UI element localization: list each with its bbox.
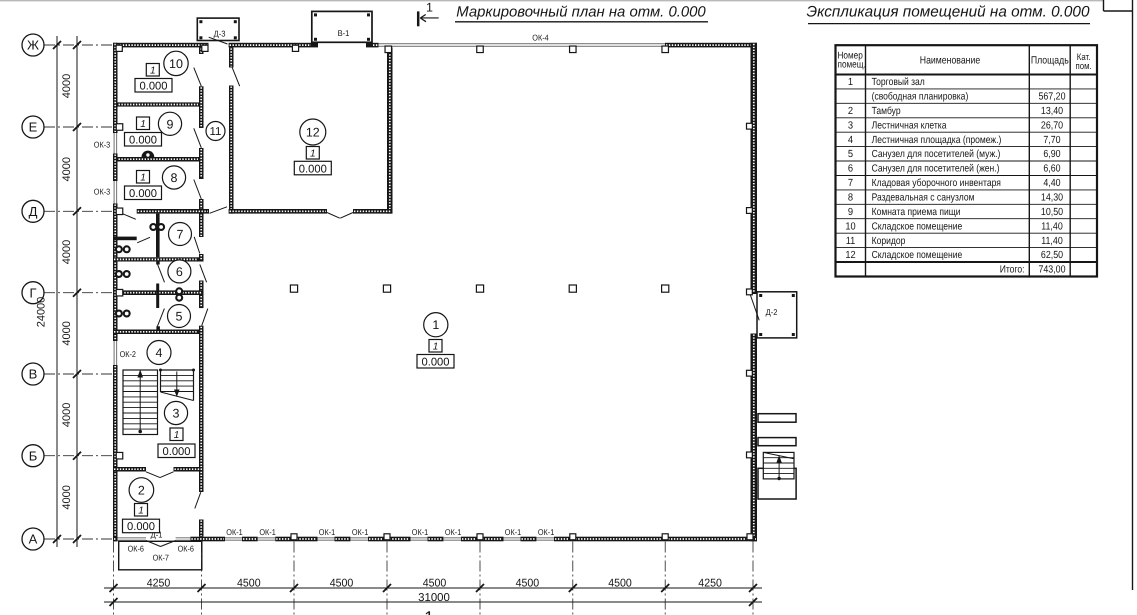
svg-text:8: 8	[171, 171, 178, 185]
svg-text:5: 5	[176, 310, 183, 324]
svg-text:10: 10	[169, 57, 183, 71]
svg-text:4000: 4000	[61, 74, 73, 98]
svg-text:1: 1	[174, 430, 180, 441]
svg-text:1: 1	[310, 149, 316, 160]
svg-text:14,30: 14,30	[1041, 193, 1063, 204]
svg-text:2: 2	[848, 106, 853, 117]
svg-text:1: 1	[848, 77, 853, 88]
svg-text:4500: 4500	[330, 578, 354, 590]
svg-text:1: 1	[138, 506, 144, 517]
svg-text:1: 1	[432, 318, 439, 332]
svg-text:0.000: 0.000	[422, 357, 450, 369]
svg-text:0.000: 0.000	[140, 81, 168, 93]
svg-text:1: 1	[140, 119, 146, 130]
svg-text:24000: 24000	[36, 297, 48, 328]
svg-text:3: 3	[173, 407, 180, 421]
svg-text:ОК-3: ОК-3	[94, 187, 111, 197]
svg-text:11: 11	[210, 126, 222, 138]
svg-text:Площадь: Площадь	[1031, 55, 1069, 67]
svg-text:Санузел для посетителей (жен.): Санузел для посетителей (жен.)	[872, 164, 1000, 175]
svg-text:Коридор: Коридор	[872, 236, 906, 247]
svg-text:Наименование: Наименование	[920, 55, 981, 67]
svg-text:В-1: В-1	[338, 28, 350, 38]
svg-text:А: А	[29, 532, 38, 547]
svg-text:0.000: 0.000	[129, 135, 157, 147]
svg-text:5: 5	[848, 149, 853, 160]
svg-text:Д: Д	[29, 204, 38, 219]
svg-text:4500: 4500	[237, 578, 261, 590]
svg-text:62,50: 62,50	[1041, 250, 1063, 261]
svg-text:3: 3	[848, 120, 853, 131]
svg-text:Е: Е	[29, 120, 38, 135]
svg-text:ОК-1: ОК-1	[352, 527, 369, 537]
svg-text:6: 6	[848, 164, 853, 175]
svg-text:Санузел для посетителей (муж.): Санузел для посетителей (муж.)	[872, 149, 1001, 160]
svg-text:13,40: 13,40	[1041, 106, 1063, 117]
svg-text:ОК-1: ОК-1	[226, 527, 243, 537]
svg-text:пом.: пом.	[1076, 60, 1092, 71]
svg-text:ОК-1: ОК-1	[259, 527, 276, 537]
svg-text:ОК-1: ОК-1	[505, 527, 522, 537]
svg-text:Складское помещение: Складское помещение	[872, 221, 963, 232]
svg-text:Складское помещение: Складское помещение	[872, 250, 963, 261]
svg-text:743,00: 743,00	[1038, 264, 1065, 275]
svg-text:4250: 4250	[698, 578, 722, 590]
svg-text:1: 1	[150, 66, 156, 77]
svg-text:4000: 4000	[61, 403, 73, 427]
svg-text:Лестничная клетка: Лестничная клетка	[872, 120, 947, 131]
svg-text:0.000: 0.000	[127, 521, 155, 533]
svg-text:Раздевальная с санузлом: Раздевальная с санузлом	[872, 193, 975, 204]
svg-text:6: 6	[176, 265, 183, 279]
svg-text:ОК-1: ОК-1	[319, 527, 336, 537]
svg-text:6,60: 6,60	[1043, 164, 1060, 175]
svg-text:4000: 4000	[61, 240, 73, 264]
svg-text:7: 7	[848, 178, 853, 189]
svg-text:Ж: Ж	[27, 38, 39, 53]
svg-text:Итого:: Итого:	[1000, 264, 1025, 275]
svg-text:9: 9	[848, 207, 853, 218]
svg-text:26,70: 26,70	[1041, 120, 1063, 131]
svg-text:ОК-6: ОК-6	[178, 544, 195, 554]
svg-text:11: 11	[846, 236, 856, 247]
svg-text:4000: 4000	[61, 321, 73, 345]
svg-text:1: 1	[433, 342, 439, 353]
svg-text:1: 1	[424, 608, 433, 615]
svg-text:4500: 4500	[608, 578, 632, 590]
svg-text:Лестничная площадка (промеж.): Лестничная площадка (промеж.)	[872, 135, 1002, 146]
svg-text:4000: 4000	[61, 485, 73, 509]
svg-text:4500: 4500	[516, 578, 540, 590]
svg-text:7: 7	[177, 228, 184, 242]
svg-text:Б: Б	[29, 448, 38, 463]
svg-text:ОК-1: ОК-1	[412, 527, 429, 537]
svg-text:Экспликация помещений на отм.: Экспликация помещений на отм. 0.000	[807, 4, 1090, 21]
svg-text:4: 4	[156, 346, 163, 360]
svg-text:9: 9	[167, 117, 174, 131]
svg-text:0.000: 0.000	[163, 446, 191, 458]
svg-text:4,40: 4,40	[1043, 178, 1060, 189]
svg-text:10: 10	[845, 221, 856, 232]
svg-text:1: 1	[426, 1, 433, 15]
svg-text:ОК-7: ОК-7	[153, 553, 170, 563]
svg-text:помещ.: помещ.	[838, 60, 866, 71]
svg-text:4500: 4500	[423, 578, 447, 590]
svg-text:ОК-2: ОК-2	[120, 349, 137, 359]
svg-text:4: 4	[848, 135, 853, 146]
svg-text:8: 8	[848, 193, 853, 204]
svg-text:ОК-4: ОК-4	[532, 32, 549, 42]
svg-text:Кладовая уборочного инвентаря: Кладовая уборочного инвентаря	[872, 178, 1001, 189]
svg-text:0.000: 0.000	[129, 188, 157, 200]
svg-text:4000: 4000	[61, 157, 73, 181]
svg-text:10,50: 10,50	[1041, 207, 1063, 218]
svg-text:В: В	[29, 367, 38, 382]
svg-text:567,20: 567,20	[1038, 92, 1065, 103]
svg-text:ОК-1: ОК-1	[538, 527, 555, 537]
svg-text:Д-2: Д-2	[766, 307, 778, 317]
svg-text:(свободная планировка): (свободная планировка)	[872, 92, 969, 103]
svg-text:ОК-3: ОК-3	[94, 140, 111, 150]
svg-text:0.000: 0.000	[299, 163, 327, 175]
svg-text:12: 12	[845, 250, 856, 261]
svg-text:2: 2	[138, 484, 145, 498]
svg-text:Торговый зал: Торговый зал	[872, 77, 925, 88]
svg-text:Тамбур: Тамбур	[872, 106, 901, 117]
svg-text:6,90: 6,90	[1043, 149, 1060, 160]
svg-text:12: 12	[306, 126, 320, 140]
svg-text:ОК-1: ОК-1	[445, 527, 462, 537]
svg-text:7,70: 7,70	[1043, 135, 1060, 146]
svg-text:Комната приема пищи: Комната приема пищи	[872, 207, 961, 218]
svg-text:Д-3: Д-3	[214, 28, 226, 38]
svg-text:Маркировочный план на отм. 0.0: Маркировочный план на отм. 0.000	[456, 5, 706, 21]
svg-text:ОК-6: ОК-6	[128, 544, 145, 554]
svg-text:31000: 31000	[418, 592, 450, 604]
svg-text:11,40: 11,40	[1041, 236, 1063, 247]
svg-text:11,40: 11,40	[1041, 221, 1063, 232]
svg-text:4250: 4250	[147, 578, 171, 590]
svg-text:1: 1	[140, 173, 146, 184]
